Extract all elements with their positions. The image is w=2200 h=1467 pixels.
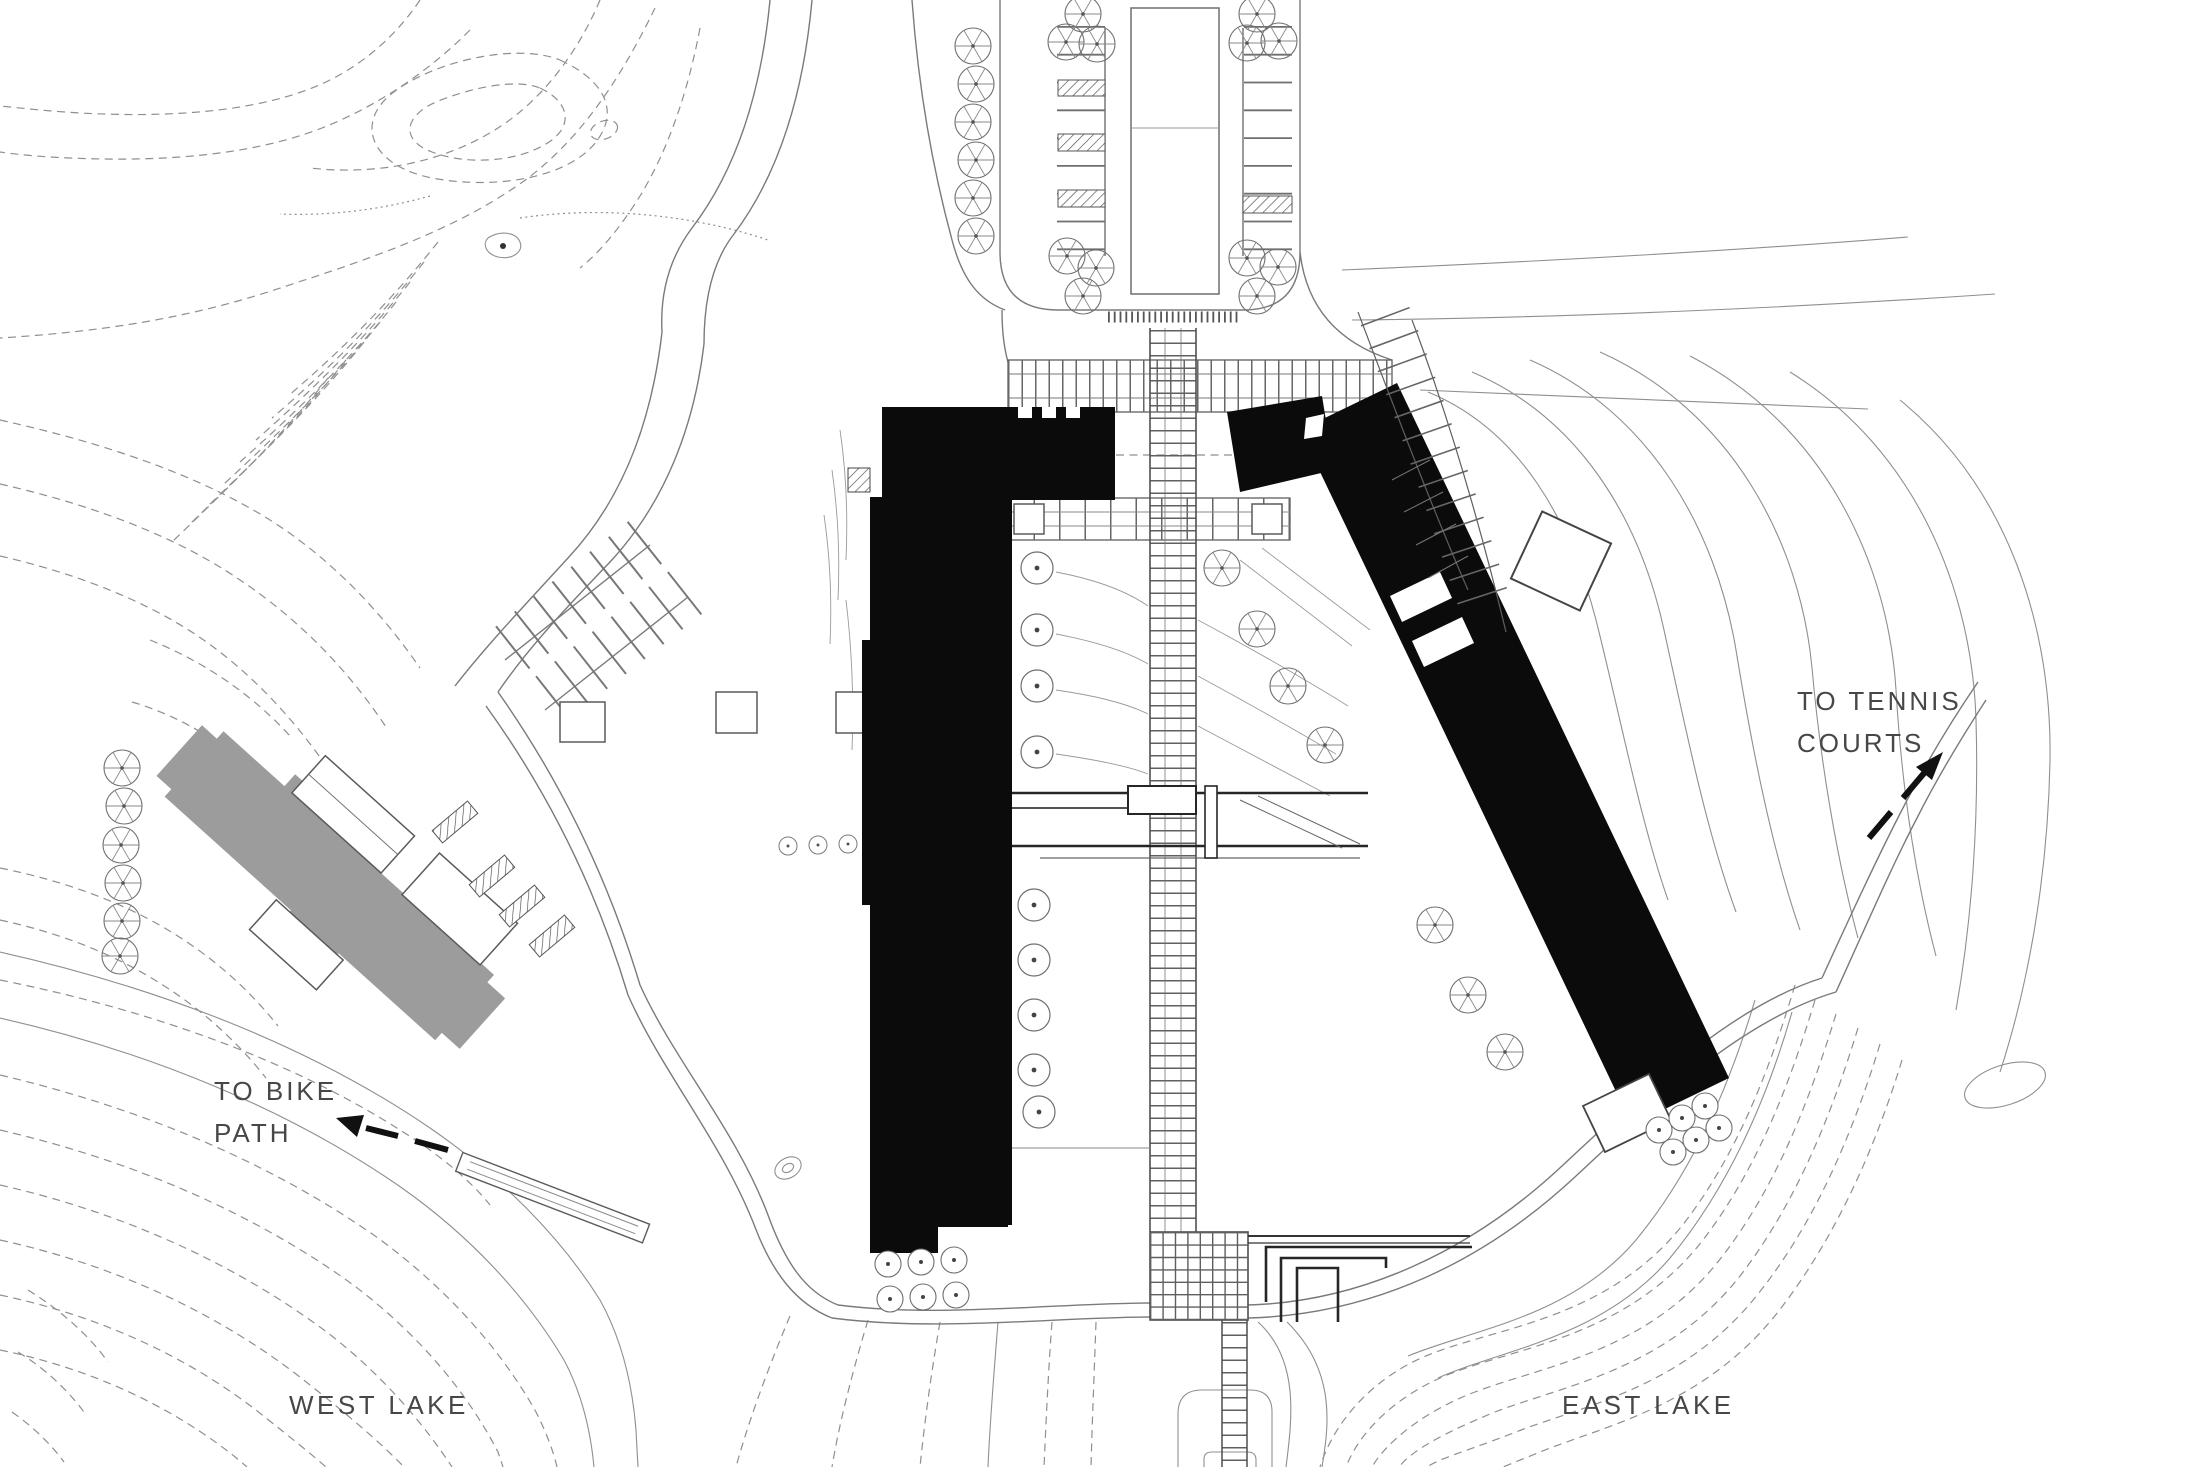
- site-plan-drawing: TO TENNIS COURTS TO BIKE PATH WEST LAKE …: [0, 0, 2200, 1467]
- bike-arrow: [336, 1115, 448, 1150]
- site-plan: TO TENNIS COURTS TO BIKE PATH WEST LAKE …: [0, 0, 2200, 1467]
- hatched-strip: [1058, 190, 1105, 207]
- parking-trees: [955, 0, 1297, 314]
- label-east-lake: EAST LAKE: [1562, 1390, 1735, 1420]
- dock: [456, 1153, 650, 1243]
- roads: [455, 0, 1986, 1324]
- label-west-lake: WEST LAKE: [289, 1390, 469, 1420]
- arrow-left-icon: [415, 1141, 448, 1150]
- hatched-strip: [1058, 80, 1105, 96]
- label-to-bike-line2: PATH: [214, 1118, 291, 1148]
- arrow-up-right-icon: [1869, 812, 1891, 838]
- label-to-tennis-line2: COURTS: [1797, 728, 1924, 758]
- south-steps: [1248, 1236, 1472, 1322]
- courtyard-trees-west: [1018, 552, 1055, 1128]
- west-building-entry-stair: [848, 468, 870, 492]
- hatched-strip: [1058, 134, 1105, 151]
- west-building-trees: [875, 1247, 969, 1312]
- contours-upper-left-hill: [0, 0, 768, 542]
- parking-lot: [955, 0, 1297, 317]
- courtyard-terrace: [1012, 786, 1368, 858]
- small-outbuilding: [716, 692, 757, 733]
- contours-bottom-center: [736, 1316, 1327, 1467]
- tennis-arrow: [1869, 752, 1943, 838]
- east-building: [1227, 383, 1729, 1125]
- pavilion: [1511, 511, 1611, 610]
- label-to-tennis-line1: TO TENNIS: [1797, 686, 1962, 716]
- small-outbuilding: [560, 702, 605, 742]
- parking-island: [1131, 8, 1219, 294]
- label-to-bike-line1: TO BIKE: [214, 1076, 337, 1106]
- hatched-strip: [1243, 196, 1292, 213]
